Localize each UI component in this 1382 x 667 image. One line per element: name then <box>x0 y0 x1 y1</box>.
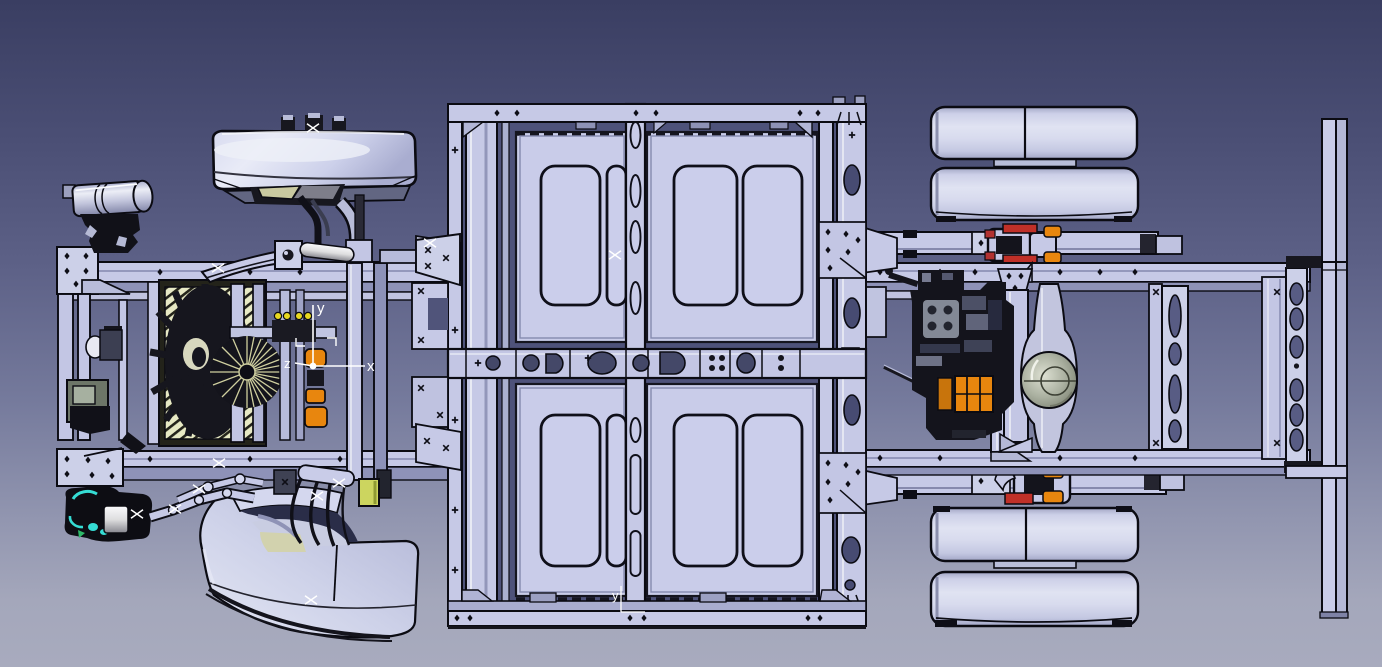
svg-text:y: y <box>612 588 619 603</box>
svg-text:z: z <box>284 356 291 371</box>
svg-text:x: x <box>367 358 375 375</box>
svg-text:y: y <box>317 300 325 317</box>
